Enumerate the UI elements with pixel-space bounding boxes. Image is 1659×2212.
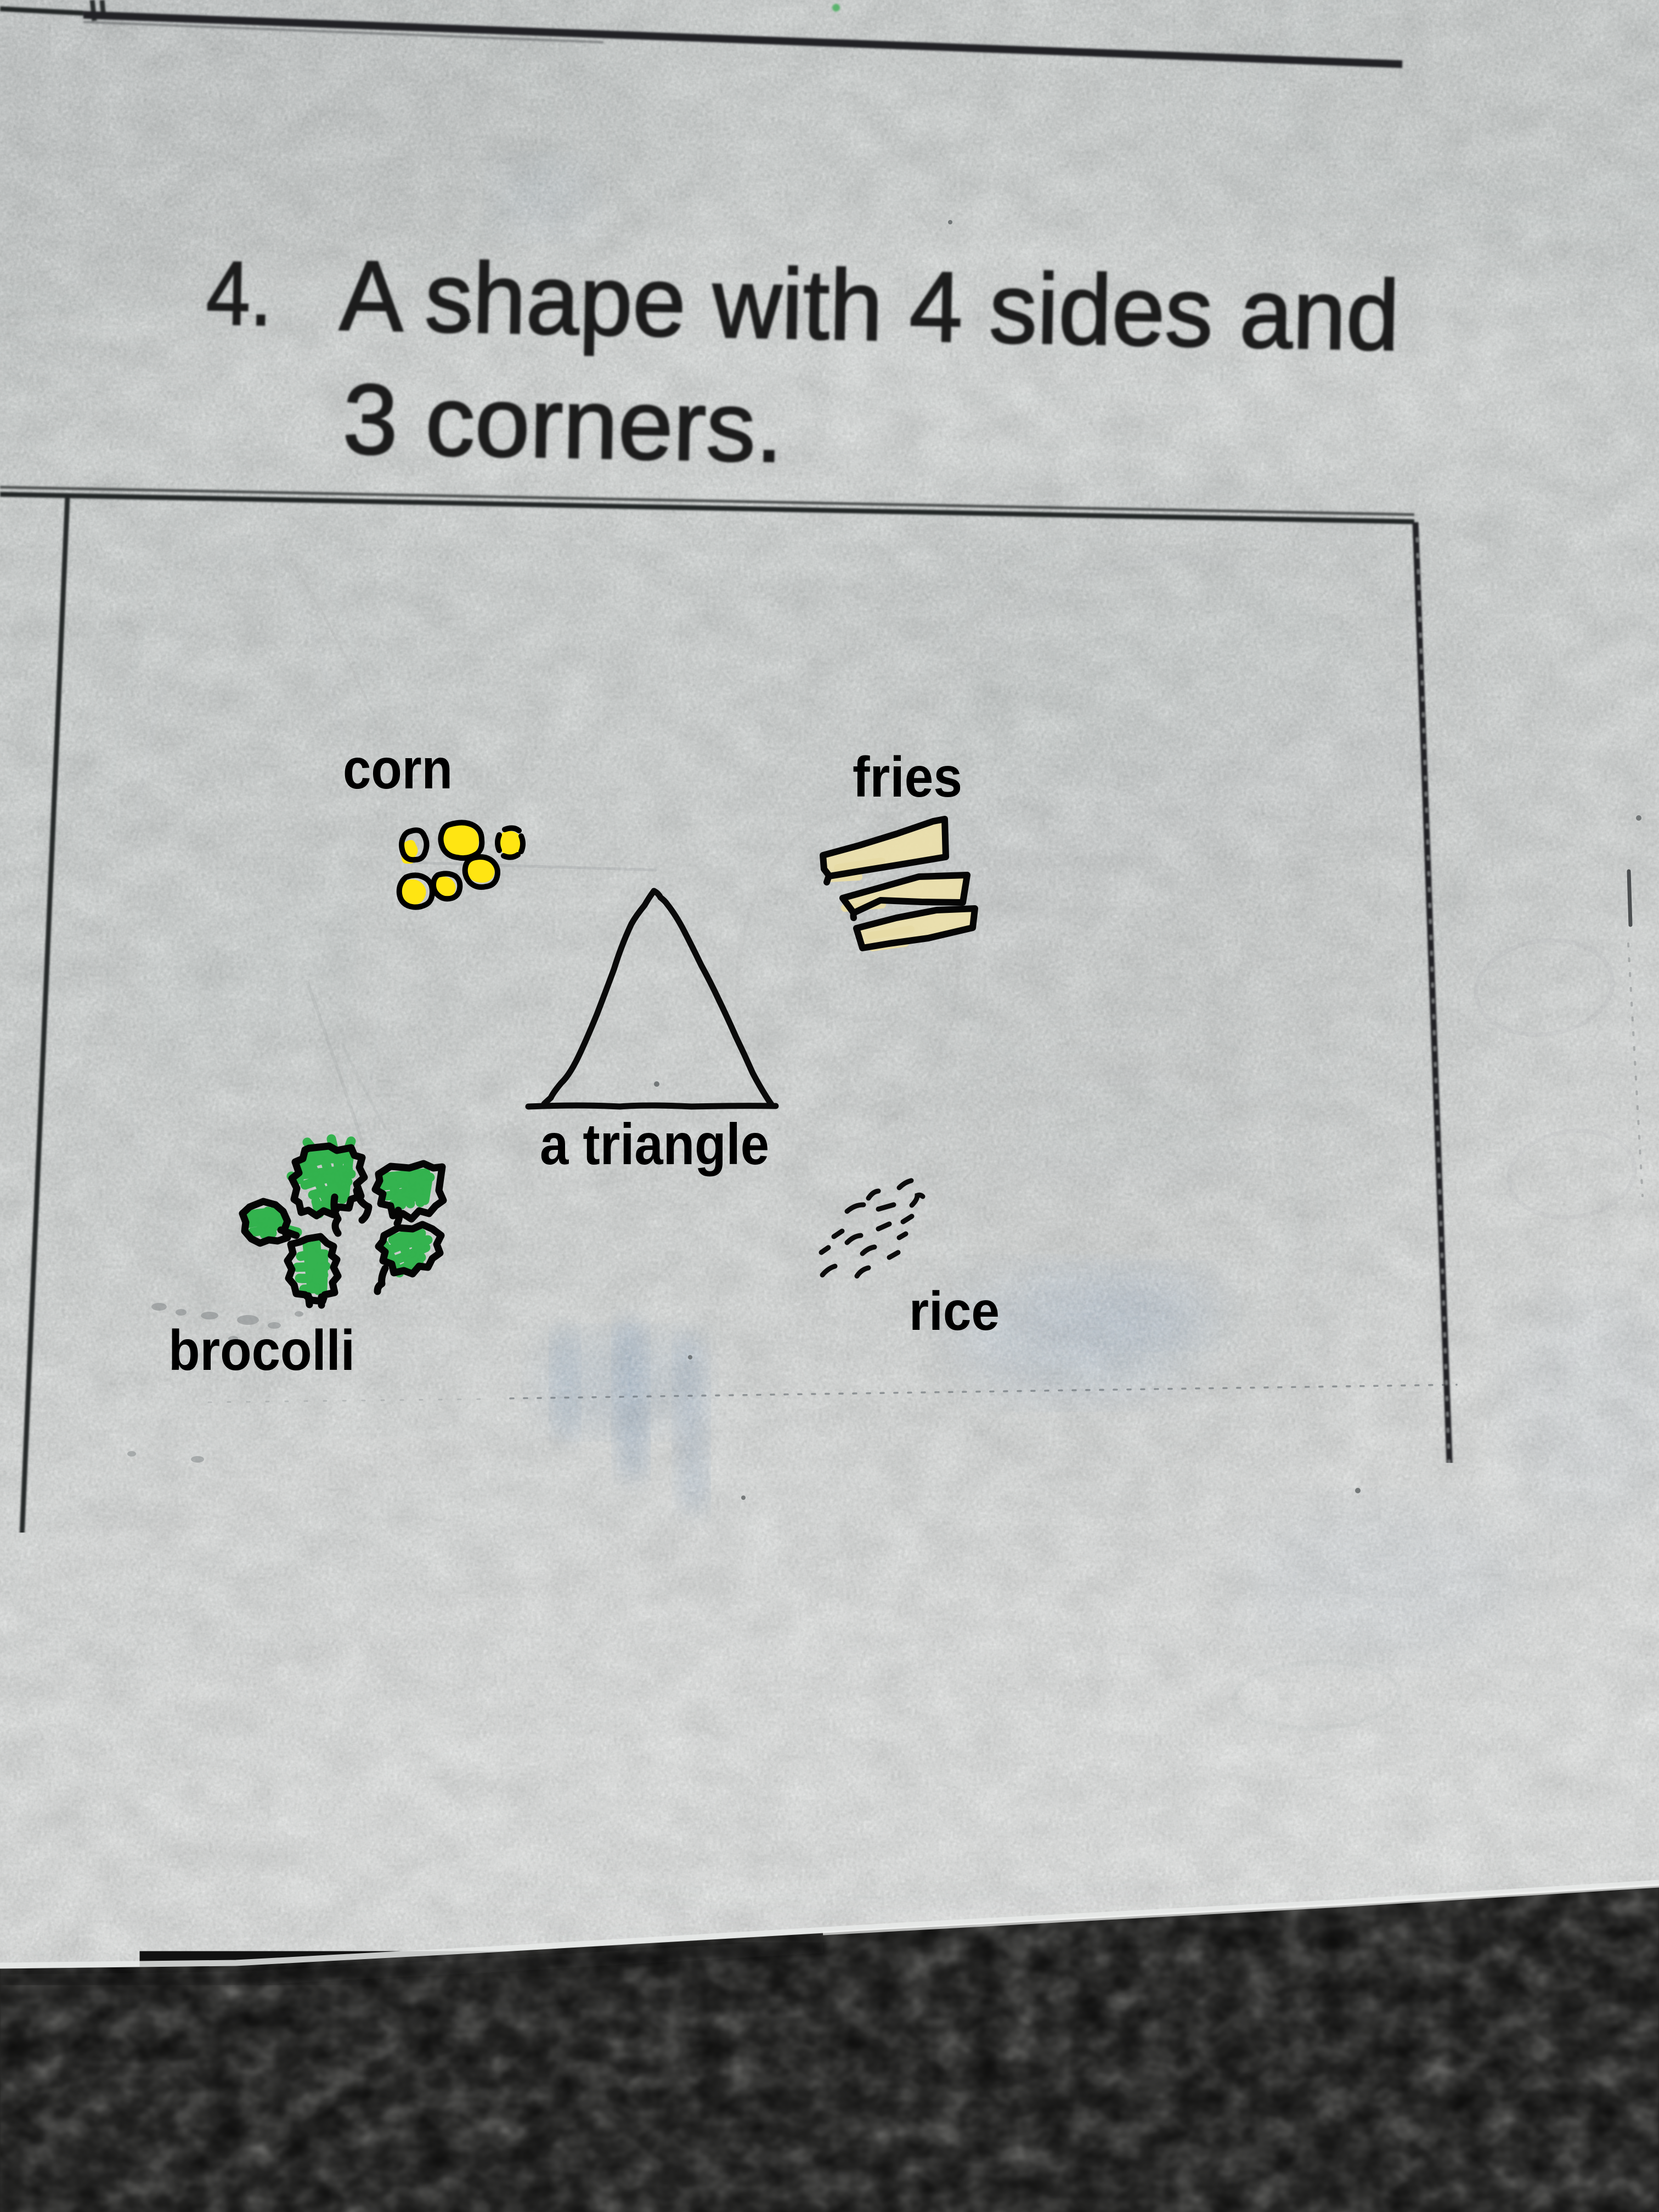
svg-text:Challenge: Challenge [826,1799,1165,1899]
svg-text:brocolli: brocolli [168,1319,355,1383]
svg-text:4.: 4. [205,242,273,344]
svg-text:rice: rice [909,1280,1000,1342]
svg-text:corn: corn [343,737,453,801]
svg-text:CW97: CW97 [1256,1793,1451,1892]
svg-text:a triangle: a triangle [540,1112,769,1177]
svg-text:3 corners.: 3 corners. [342,363,785,483]
svg-text:A shape with 4 sides and: A shape with 4 sides and [338,239,1401,371]
svg-text:fries: fries [853,746,962,809]
